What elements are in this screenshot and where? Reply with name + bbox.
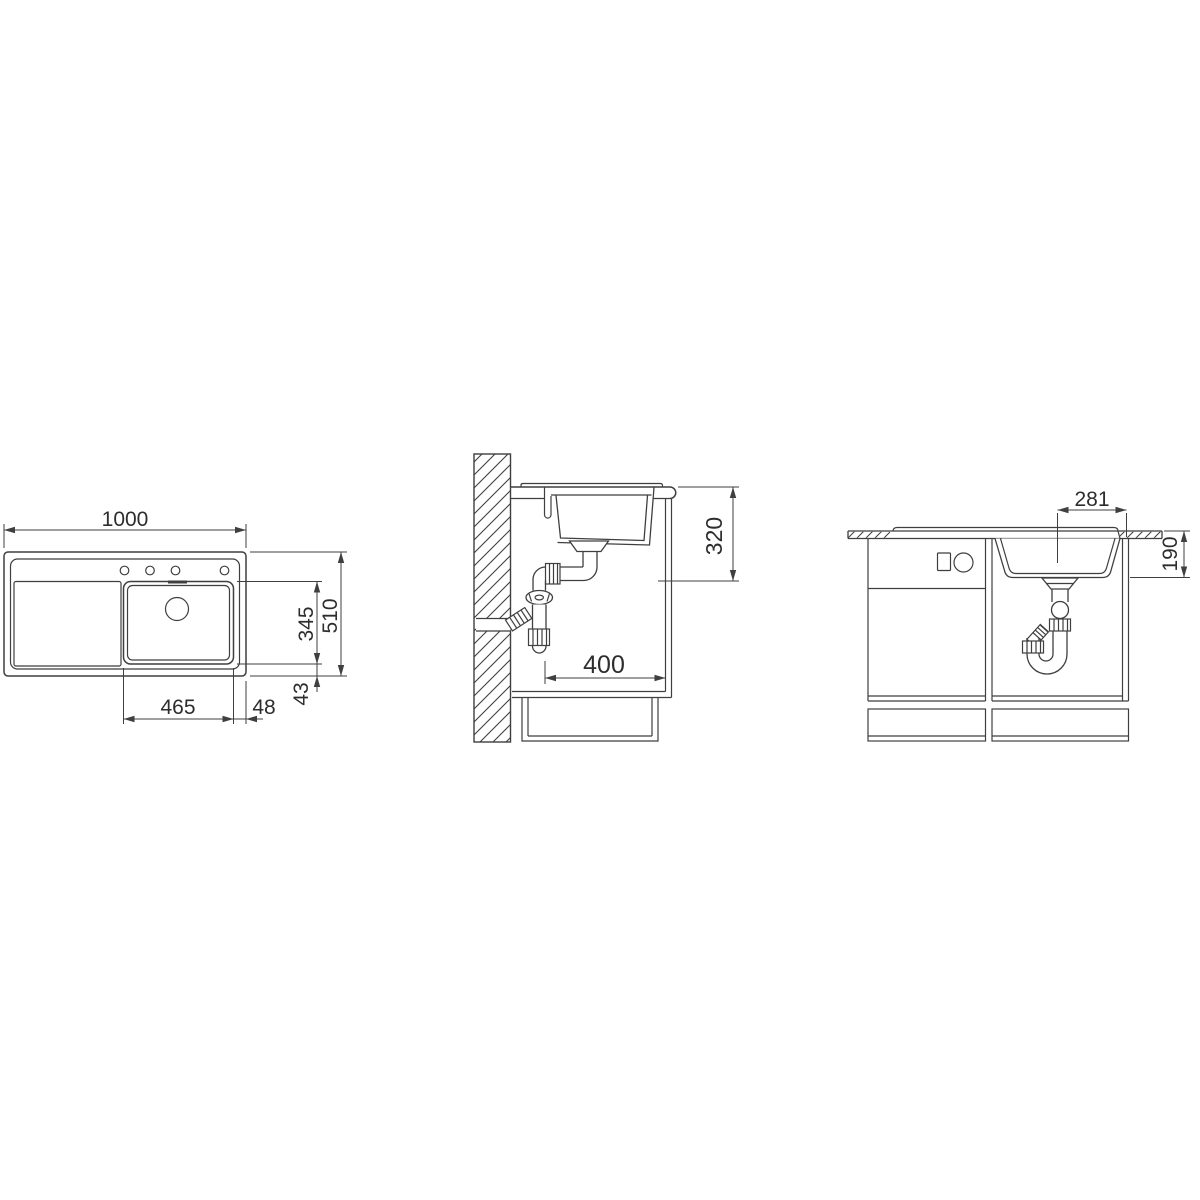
riser-coupling <box>1023 641 1044 653</box>
countertop-front <box>848 528 1162 539</box>
control-knob <box>954 553 973 572</box>
left-cabinet <box>868 539 986 702</box>
faucet-hole <box>220 566 229 575</box>
tailpipe <box>583 552 597 568</box>
pipe-nut <box>546 564 561 585</box>
cabinet-bottom <box>868 696 986 701</box>
sink-rim-front <box>893 528 1120 539</box>
plinth <box>522 698 658 742</box>
cabinet-front-wall <box>666 499 672 698</box>
arrowhead <box>314 653 320 664</box>
arrowhead <box>730 487 736 498</box>
rim-channel <box>545 487 552 518</box>
elbow-down <box>533 567 546 591</box>
u-bend-inner <box>1039 654 1053 661</box>
plinth-right <box>992 709 1129 741</box>
cabinet-bottom <box>512 692 672 698</box>
dim-drain-height: 320 <box>658 487 739 581</box>
arrowhead <box>1116 507 1127 513</box>
dim-edge-right: 48 <box>234 681 276 724</box>
dimension-label: 400 <box>583 651 625 679</box>
dimension-label: 320 <box>701 517 727 555</box>
down-pipe <box>1053 631 1067 654</box>
arrowhead <box>338 665 344 676</box>
cabinet-bottom <box>992 696 1129 701</box>
faucet-hole <box>171 566 180 575</box>
tailpipe-front <box>1052 589 1068 602</box>
ball-joint <box>1052 602 1069 619</box>
bowl-wall <box>556 496 648 541</box>
arrowhead <box>235 527 246 533</box>
counter-nose <box>670 487 676 499</box>
arrowhead <box>655 675 666 681</box>
bowl-inner-edge <box>128 586 230 661</box>
drain-trap-assembly <box>526 541 609 653</box>
counter-outline <box>848 531 1162 539</box>
arrowhead <box>223 716 234 722</box>
faucet-holes <box>120 566 229 575</box>
dim-drain-depth: 400 <box>545 651 666 684</box>
countertop-section <box>511 484 676 499</box>
cabinet-walls <box>868 539 986 702</box>
dimension-label: 465 <box>160 696 195 719</box>
sink-inner-rim <box>11 559 240 669</box>
dimension-label: 190 <box>1159 536 1182 571</box>
arrowhead <box>314 582 320 593</box>
faucet-hole <box>146 566 155 575</box>
dimension-label: 281 <box>1074 488 1109 511</box>
dimension-label: 48 <box>252 696 275 719</box>
arrowhead <box>338 552 344 563</box>
horizontal-run <box>559 567 584 581</box>
front-view: 281 190 <box>848 488 1190 741</box>
wall-section <box>474 454 511 742</box>
u-bend-outer <box>1027 654 1067 674</box>
arrowhead <box>545 675 556 681</box>
dim-overall-length: 1000 <box>4 508 246 548</box>
side-section-view: 320 400 <box>474 454 739 742</box>
control-panel-display <box>938 553 951 571</box>
drain-cup <box>570 541 609 552</box>
dimension-label: 345 <box>295 606 318 641</box>
bowl-outer-edge <box>124 582 234 665</box>
plan-view: 1000 510 345 43 465 <box>4 508 347 724</box>
faucet-hole <box>120 566 129 575</box>
dim-bowl-width: 345 <box>237 582 322 665</box>
bowl-outer-skin <box>558 488 655 546</box>
counter-cut-hatch-left <box>848 532 890 538</box>
tail-nut <box>1050 619 1071 631</box>
dimension-label: 510 <box>319 598 342 633</box>
drain-hole <box>166 598 189 621</box>
sink-outer-rim <box>4 552 246 676</box>
plinth-left <box>868 709 986 741</box>
technical-drawing-sheet: 1000 510 345 43 465 <box>0 0 1200 1200</box>
trap-front <box>1023 578 1079 674</box>
drainboard <box>14 582 121 667</box>
trap-coupling <box>529 629 550 646</box>
dim-edge-bottom: 43 <box>290 664 320 706</box>
bowl-section <box>545 487 655 545</box>
arrowhead <box>124 716 135 722</box>
arrowhead <box>4 527 15 533</box>
arrowhead <box>730 570 736 581</box>
trap-union-wheel <box>526 591 553 605</box>
dimension-label: 43 <box>290 682 313 705</box>
arrowhead <box>1058 507 1069 513</box>
arrowhead <box>314 676 320 687</box>
dimension-label: 1000 <box>102 508 149 531</box>
elbow-outer <box>584 567 598 581</box>
